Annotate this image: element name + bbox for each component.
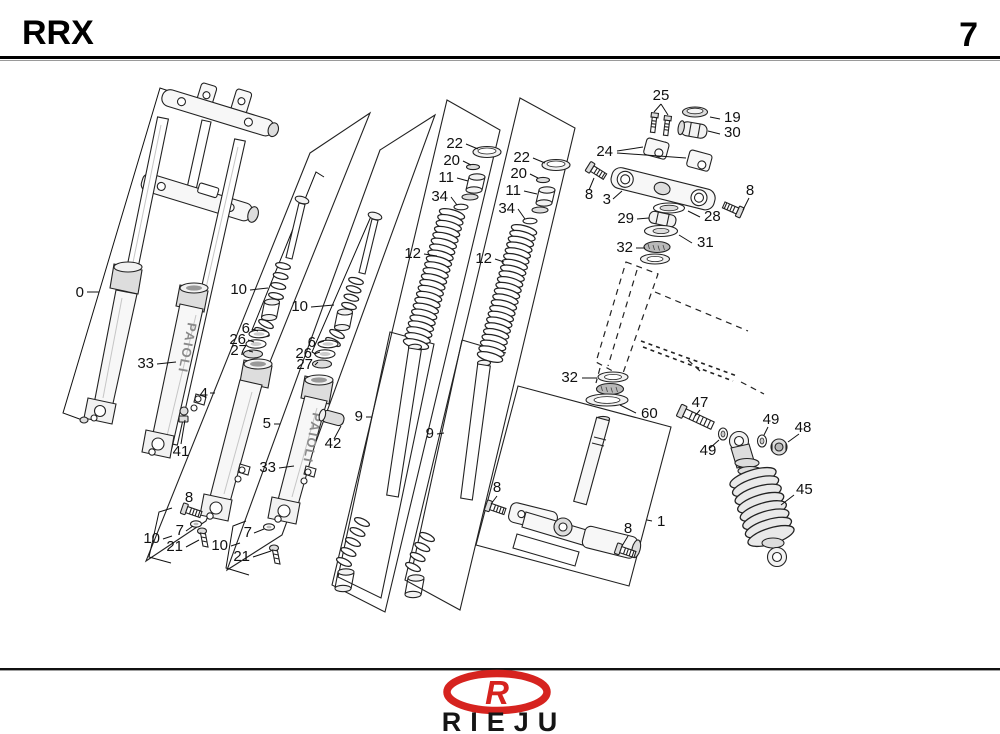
callout-21-b: 21 xyxy=(233,548,250,565)
callout-0: 0 xyxy=(76,284,84,301)
spacer-tube xyxy=(335,309,353,331)
callout-27-b: 27 xyxy=(296,356,313,373)
bearing-32-lower xyxy=(597,372,629,395)
callout-22-b: 22 xyxy=(513,149,530,166)
callout-42: 42 xyxy=(325,435,342,452)
bottom-bush xyxy=(405,575,424,598)
steering-stem xyxy=(574,417,610,504)
callout-8-c: 8 xyxy=(746,182,754,199)
riser-screw-25b xyxy=(662,116,671,136)
rebound-rings xyxy=(335,516,370,568)
callout-10-c: 10 xyxy=(143,530,160,547)
callout-20-a: 20 xyxy=(443,152,460,169)
callout-4: 4 xyxy=(200,385,208,402)
ring-34 xyxy=(454,204,468,210)
callout-29: 29 xyxy=(617,210,634,227)
fork-slider-left xyxy=(80,262,142,424)
drain-screw-21 xyxy=(198,528,209,547)
rebound-rings xyxy=(404,531,435,574)
ring-34 xyxy=(523,218,537,224)
callout-21-a: 21 xyxy=(166,538,183,555)
page-title: RRX xyxy=(22,14,94,52)
o-ring-20 xyxy=(537,177,550,182)
callout-8-a: 8 xyxy=(185,489,193,506)
piston-11 xyxy=(532,187,555,213)
callout-20-b: 20 xyxy=(510,165,527,182)
callout-49-b: 49 xyxy=(700,442,717,459)
callout-9-a: 9 xyxy=(355,408,363,425)
callout-11-b: 11 xyxy=(505,182,521,199)
callout-8-d: 8 xyxy=(493,479,501,496)
callout-3: 3 xyxy=(603,191,611,208)
callout-22-a: 22 xyxy=(446,135,463,152)
logo-letter: R xyxy=(485,674,509,711)
lock-nut-48 xyxy=(771,439,787,455)
pinch-bolt-8-right xyxy=(721,200,744,218)
o-ring-20 xyxy=(467,164,480,169)
bottom-yoke-assembly xyxy=(484,416,643,560)
callout-32-a: 32 xyxy=(616,239,633,256)
bearing-32-upper xyxy=(641,242,671,265)
callout-30: 30 xyxy=(724,124,741,141)
spacer-tube xyxy=(262,299,280,321)
callout-33-b: 33 xyxy=(259,459,276,476)
riser-screw-25a xyxy=(649,113,658,133)
drain-screw-21 xyxy=(270,545,281,564)
callout-24: 24 xyxy=(596,143,613,160)
callout-60: 60 xyxy=(641,405,658,422)
callout-41: 41 xyxy=(173,443,190,460)
callout-32-b: 32 xyxy=(561,369,578,386)
callout-12-b: 12 xyxy=(475,250,492,267)
pinch-bolt-8-left xyxy=(585,161,608,181)
callout-25: 25 xyxy=(653,87,670,104)
lower-triple-clamp xyxy=(140,166,263,224)
fork-slider-exploded-left xyxy=(200,359,272,521)
callout-12-a: 12 xyxy=(404,245,421,262)
catalog-page: RRX 7 xyxy=(0,0,1000,734)
callout-33-a: 33 xyxy=(137,355,154,372)
callout-9-b: 9 xyxy=(426,425,434,442)
callout-10-a: 10 xyxy=(230,281,247,298)
callout-34-b: 34 xyxy=(498,200,515,217)
callout-48: 48 xyxy=(795,419,812,436)
page-number: 7 xyxy=(959,16,978,54)
callout-8-b: 8 xyxy=(585,186,593,203)
callout-5: 5 xyxy=(263,415,271,432)
callout-27-a: 27 xyxy=(230,342,247,359)
callout-1: 1 xyxy=(657,513,665,530)
callout-45: 45 xyxy=(796,481,813,498)
header-rule xyxy=(0,56,1000,59)
parts-diagram: RRX 7 xyxy=(0,0,1000,734)
brand-logo: R xyxy=(447,674,547,712)
rear-shock-group xyxy=(676,404,796,566)
callout-8-e: 8 xyxy=(624,520,632,537)
callout-47: 47 xyxy=(692,394,709,411)
pinch-bolt-41 xyxy=(180,407,188,415)
callout-28: 28 xyxy=(704,208,721,225)
callout-10-d: 10 xyxy=(211,537,228,554)
yoke-bolt-8-left xyxy=(484,500,506,517)
callout-7-a: 7 xyxy=(176,522,184,539)
bar-mount-24b xyxy=(686,149,713,171)
fork-slider-exploded-right: PAIOLI xyxy=(268,375,333,524)
piston-11 xyxy=(462,174,485,200)
brand-wordmark: RIEJU xyxy=(442,707,567,734)
callout-34-a: 34 xyxy=(431,188,448,205)
callout-49-a: 49 xyxy=(763,411,780,428)
callout-10-b: 10 xyxy=(291,298,308,315)
callout-7-b: 7 xyxy=(244,524,252,541)
callout-11-a: 11 xyxy=(438,169,454,186)
damper-rod-9 xyxy=(387,344,422,497)
callout-31: 31 xyxy=(697,234,714,251)
bar-clamp-30 xyxy=(677,120,708,139)
fork-spring-12 xyxy=(402,206,465,351)
top-triple-clamp xyxy=(160,88,281,140)
damper-rod-9 xyxy=(461,360,491,500)
